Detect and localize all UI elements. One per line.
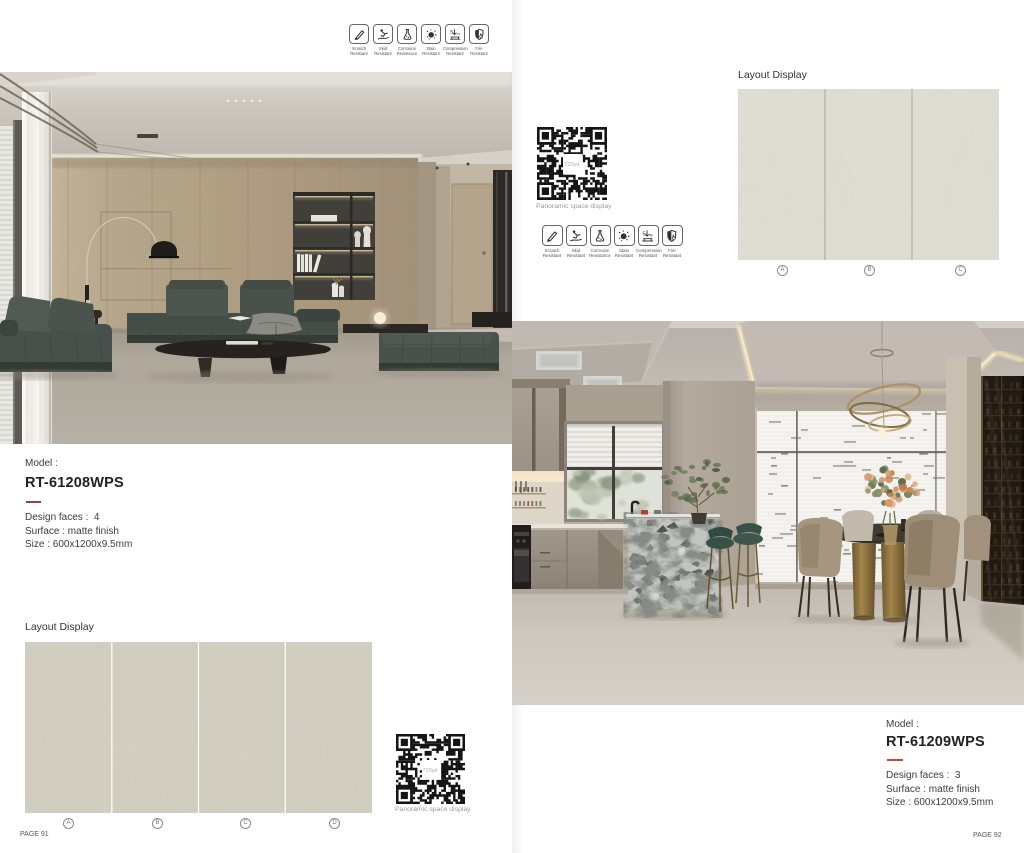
svg-text:kg: kg <box>649 233 653 237</box>
svg-text:720yd: 720yd <box>423 768 438 774</box>
svg-text:720yd: 720yd <box>565 162 580 168</box>
svg-text:5: 5 <box>450 30 453 36</box>
svg-text:kg: kg <box>456 31 460 35</box>
svg-text:5: 5 <box>642 231 645 237</box>
